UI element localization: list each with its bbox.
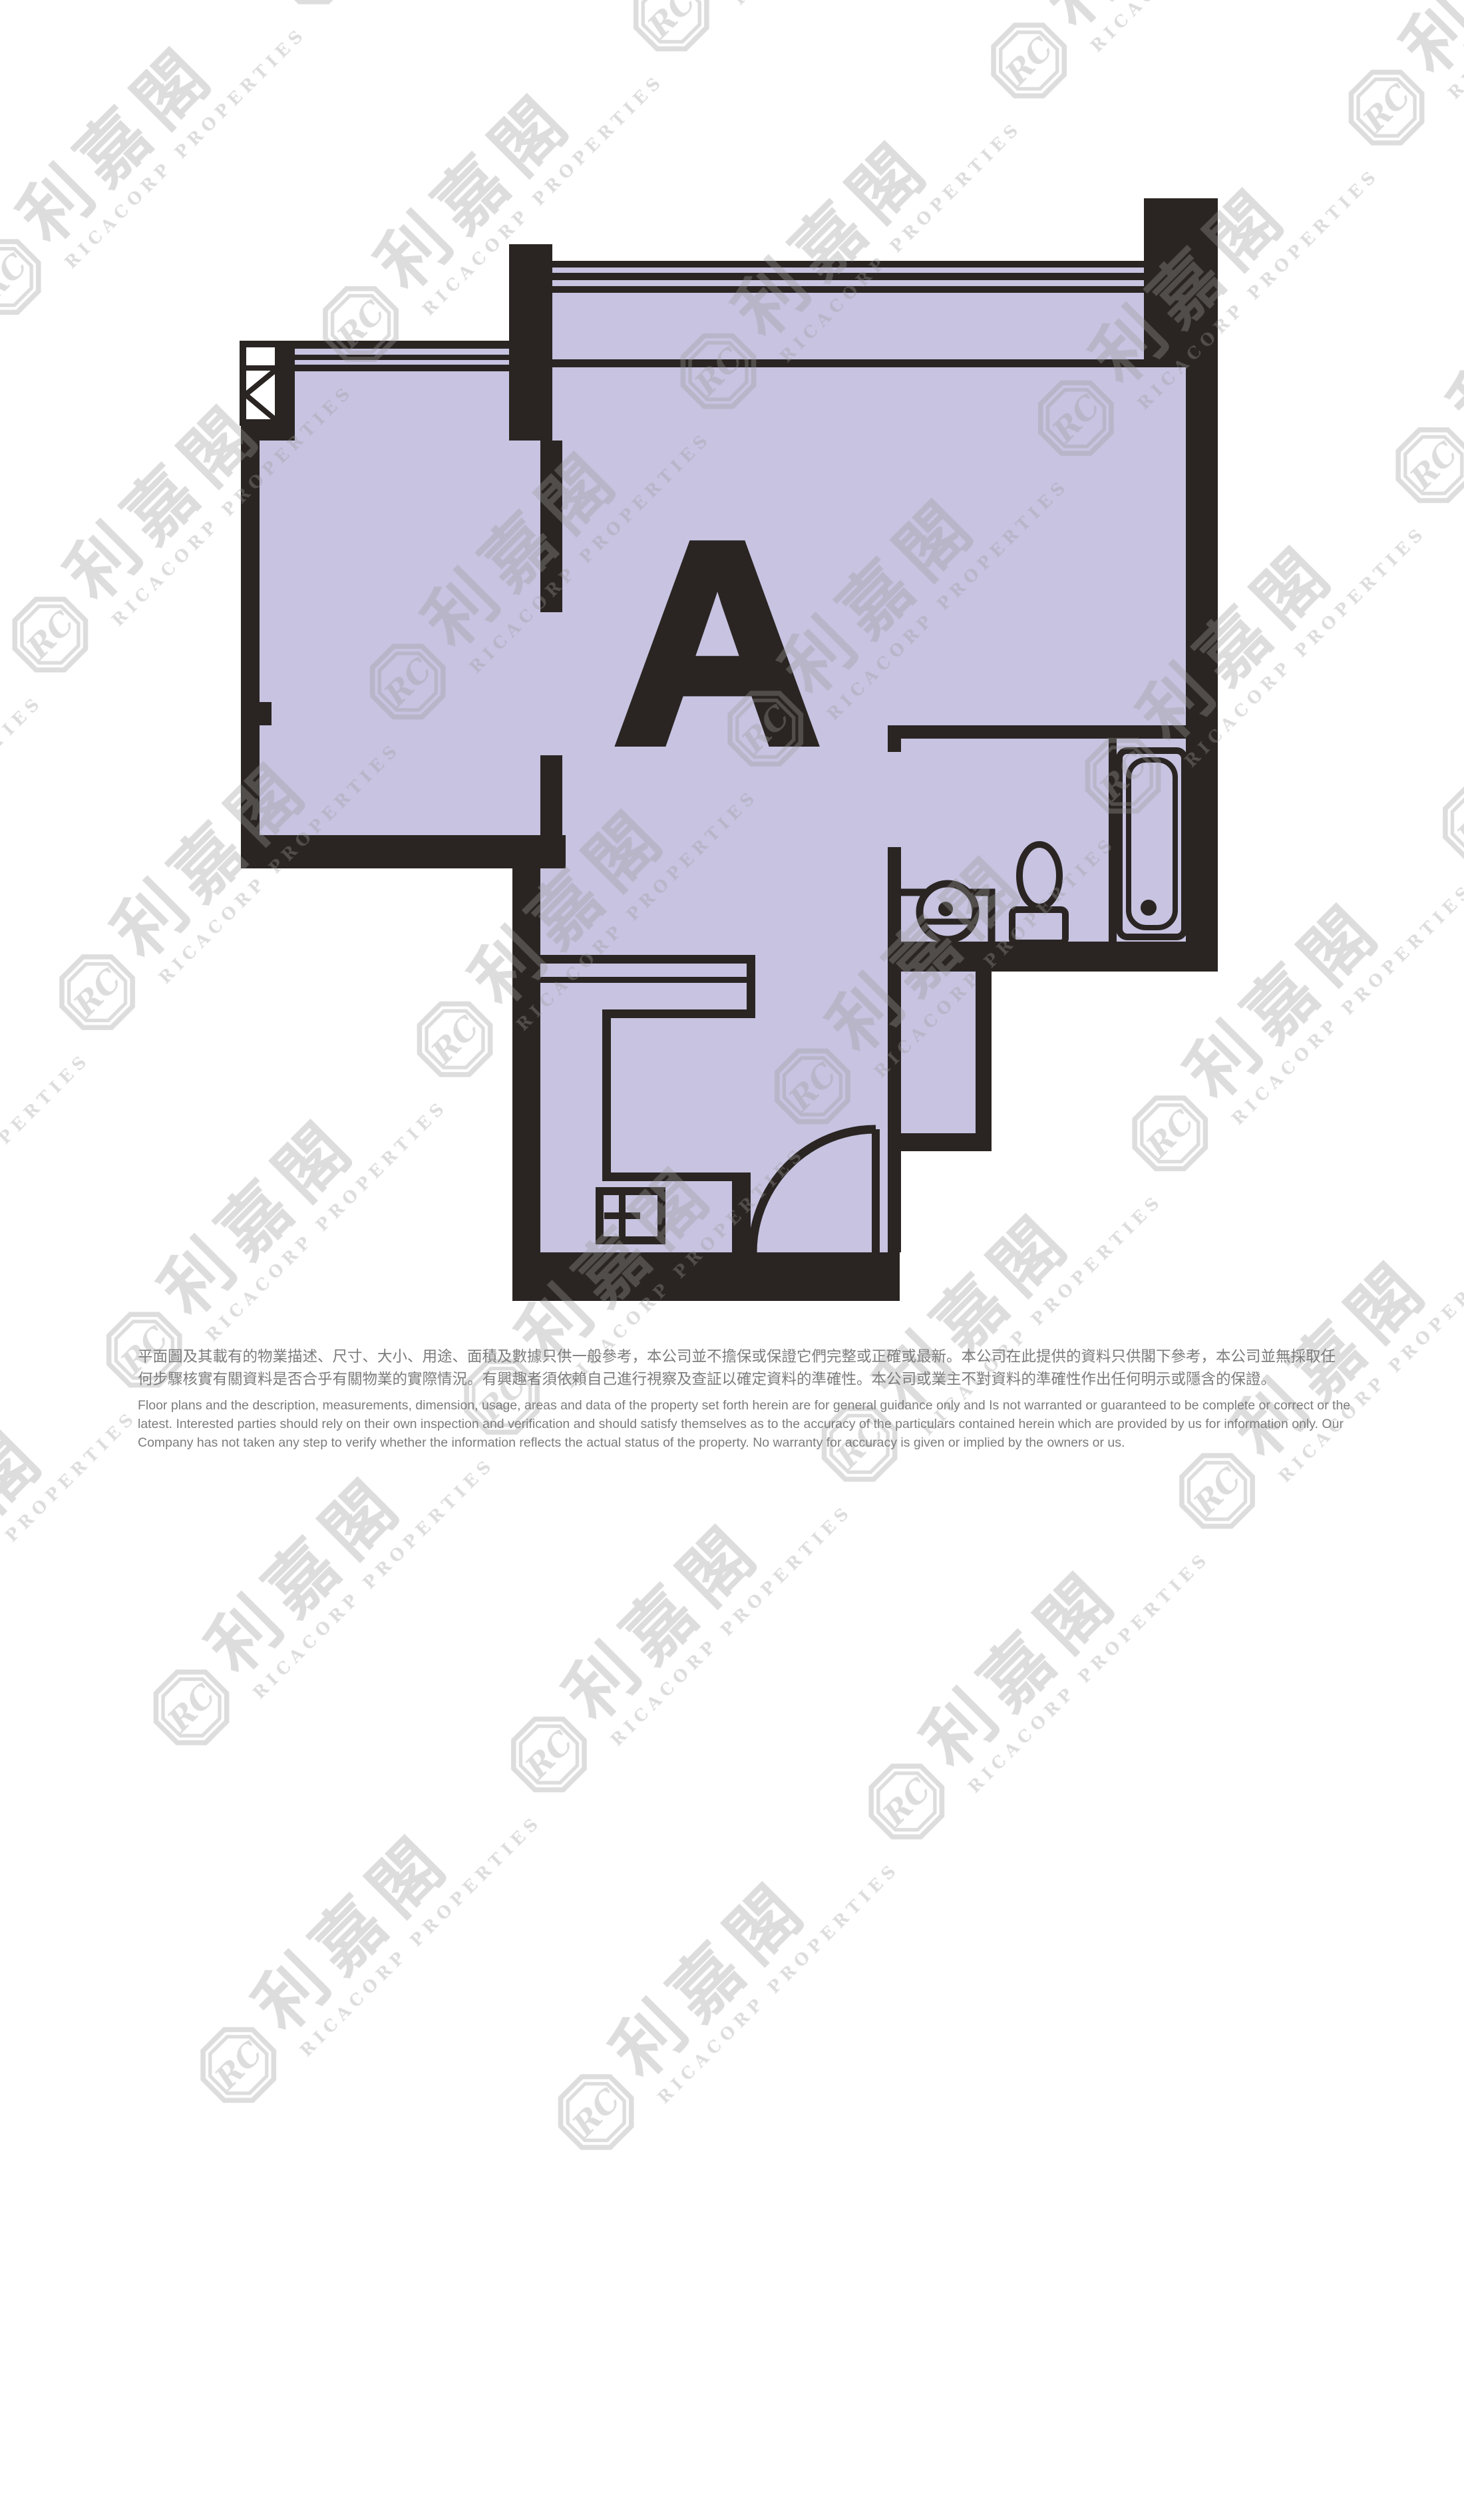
toilet-tank xyxy=(1012,910,1065,943)
bathtub-partition xyxy=(1109,739,1117,942)
bathroom-door-stub-upper xyxy=(888,725,901,752)
top-window-sill-line xyxy=(552,359,1186,367)
bottom-outer-wall xyxy=(512,1252,900,1301)
disclaimer-en-line3: Company has not taken any step to verify… xyxy=(138,1433,1375,1452)
counter-right-connector xyxy=(747,955,755,1018)
ricacorp-logo-rc-text: RC xyxy=(518,1723,581,1787)
ricacorp-logo-icon: RC xyxy=(182,2009,293,2120)
watermark-brand-zh: 利嘉閣 xyxy=(600,1868,821,2089)
floor-plan: A xyxy=(0,0,1464,1464)
toilet xyxy=(1012,844,1065,943)
room-divider-wall-lower xyxy=(540,755,562,845)
corridor-right-wall xyxy=(976,972,992,1151)
entry-corridor-floor xyxy=(900,972,976,1151)
living-room-floor xyxy=(260,439,540,836)
watermark-brand-zh: 利嘉閣 xyxy=(553,1511,774,1731)
watermark-tile: RC 利嘉閣 RICACORP PROPERTIES xyxy=(487,1447,856,1815)
watermark-brand-zh: 利嘉閣 xyxy=(243,1821,464,2042)
top-window-line-2 xyxy=(552,273,1146,280)
corridor-left-wall xyxy=(888,972,901,1252)
left-window-line-2 xyxy=(293,355,509,360)
watermark-text: 利嘉閣 RICACORP PROPERTIES xyxy=(911,1494,1214,1797)
disclaimer-zh-line1: 平面圖及其載有的物業描述、尺寸、大小、用途、面積及數據只供一般參考，本公司並不擔… xyxy=(138,1346,1375,1368)
right-outer-wall xyxy=(1186,359,1218,972)
ac-platform xyxy=(243,344,278,423)
disclaimer-gap xyxy=(138,1391,1375,1396)
counter-line-top-1 xyxy=(540,955,755,964)
watermark-text: 利嘉閣 RICACORP PROPERTIES xyxy=(553,1447,856,1749)
left-window-line-1 xyxy=(293,341,509,349)
counter-inner-line xyxy=(602,1009,755,1018)
room-opening-floor xyxy=(536,612,562,755)
left-wall-column xyxy=(241,702,272,725)
watermark-text: 利嘉閣 RICACORP PROPERTIES xyxy=(600,1805,903,2107)
watermark-brand-en: RICACORP PROPERTIES xyxy=(250,1453,499,1703)
room-divider-wall-upper xyxy=(540,441,562,612)
ricacorp-logo-rc-text: RC xyxy=(875,1771,938,1834)
watermark-tile: RC 利嘉閣 RICACORP PROPERTIES xyxy=(845,1494,1214,1863)
counter-end-wall xyxy=(732,1172,751,1252)
entrance-door-leaf xyxy=(872,1129,880,1252)
basin-drain-dot xyxy=(938,902,953,916)
ricacorp-logo-rc-text: RC xyxy=(207,2034,270,2097)
kitchen-floor xyxy=(540,835,900,1252)
watermark-tile: RC 利嘉閣 RICACORP PROPERTIES xyxy=(534,1805,903,2173)
step-wall xyxy=(509,244,552,441)
watermark-brand-en: RICACORP PROPERTIES xyxy=(964,1548,1214,1797)
watermark-text: 利嘉閣 RICACORP PROPERTIES xyxy=(243,1757,546,2060)
left-window-line-3 xyxy=(293,365,509,371)
ricacorp-logo-icon: RC xyxy=(493,1699,604,1810)
left-outer-wall xyxy=(241,439,260,868)
ricacorp-logo-rc-text: RC xyxy=(160,1677,223,1740)
counter-bottom-line xyxy=(602,1172,751,1181)
bathtub-drain-dot xyxy=(1141,900,1157,916)
ricacorp-logo-icon: RC xyxy=(540,2056,651,2167)
corridor-bottom-wall xyxy=(900,1133,992,1151)
bathroom-top-wall xyxy=(888,725,1186,739)
ricacorp-logo-rc-text: RC xyxy=(1186,1460,1249,1523)
top-window-line-1 xyxy=(552,261,1146,268)
ricacorp-logo-rc-text: RC xyxy=(564,2081,628,2145)
top-window-line-3 xyxy=(552,286,1146,293)
watermark-brand-en: RICACORP PROPERTIES xyxy=(654,1858,904,2107)
toilet-bowl xyxy=(1019,844,1059,907)
watermark-brand-en: RICACORP PROPERTIES xyxy=(296,1811,546,2061)
kitchen-left-wall xyxy=(512,843,540,1301)
watermark-brand-en: RICACORP PROPERTIES xyxy=(607,1501,856,1750)
counter-left-vertical xyxy=(602,1009,611,1181)
watermark-brand-zh: 利嘉閣 xyxy=(196,1463,417,1684)
disclaimer-zh-line2: 何步驟核實有關資料是否合乎有關物業的實際情況。有興趣者須依賴自己進行視察及查証以… xyxy=(138,1368,1375,1391)
top-right-column xyxy=(1144,198,1218,361)
disclaimer-en-line2: latest. Interested parties should rely o… xyxy=(138,1415,1375,1433)
disclaimer: 平面圖及其載有的物業描述、尺寸、大小、用途、面積及數據只供一般參考，本公司並不擔… xyxy=(138,1346,1375,1452)
watermark-brand-zh: 利嘉閣 xyxy=(911,1557,1132,1778)
counter-line-top-2 xyxy=(540,977,755,983)
disclaimer-en-line1: Floor plans and the description, measure… xyxy=(138,1396,1375,1415)
watermark-tile: RC 利嘉閣 RICACORP PROPERTIES xyxy=(177,1757,546,2126)
ricacorp-logo-icon: RC xyxy=(851,1745,962,1857)
bathtub xyxy=(1119,751,1185,937)
unit-label: A xyxy=(614,484,821,803)
ricacorp-logo-icon: RC xyxy=(136,1652,247,1763)
